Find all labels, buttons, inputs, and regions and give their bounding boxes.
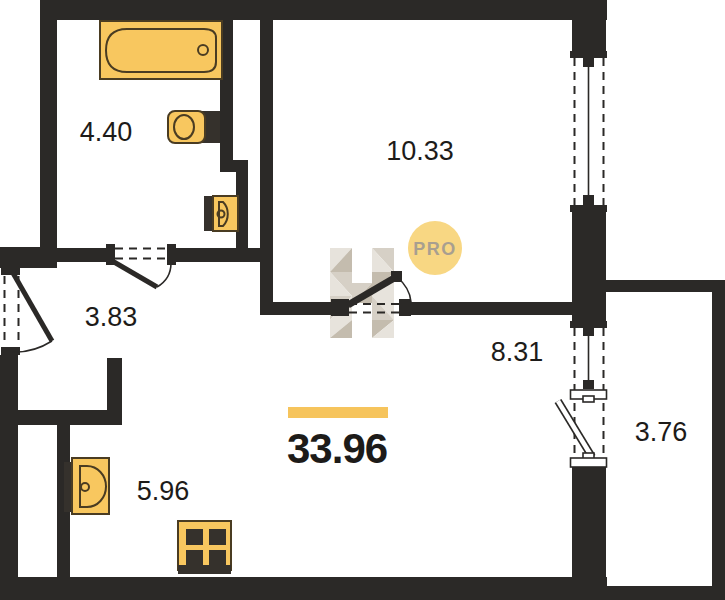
floor-plan: PRO xyxy=(0,0,725,600)
bathroom-door xyxy=(106,244,176,287)
washbasin-icon xyxy=(204,196,238,231)
door-sill xyxy=(571,458,607,467)
kitchen-sink-icon xyxy=(64,458,109,514)
bathtub-icon xyxy=(100,21,222,79)
door-swing-arc xyxy=(157,263,171,287)
stove-icon xyxy=(178,521,231,574)
balcony-door xyxy=(558,390,607,467)
area-label-bedroom: 10.33 xyxy=(386,136,454,166)
door-jamb xyxy=(331,299,349,316)
pro-badge-label: PRO xyxy=(413,239,457,259)
door-jamb xyxy=(1,267,20,275)
bedroom-window-icon xyxy=(575,57,604,205)
living-window-icon xyxy=(575,327,604,390)
area-label-hallway: 3.83 xyxy=(85,302,138,332)
floor-plan-canvas: PRO xyxy=(0,0,725,600)
door-jamb xyxy=(399,299,411,316)
door-leaf xyxy=(114,262,157,287)
area-label-living: 8.31 xyxy=(491,337,544,367)
total-area: 33.96 xyxy=(287,407,388,472)
toilet-icon xyxy=(168,111,220,143)
area-label-balcony: 3.76 xyxy=(635,417,688,447)
door-jamb xyxy=(1,347,20,355)
door-jamb xyxy=(106,244,115,265)
door-jamb xyxy=(167,244,176,265)
pro-badge: PRO xyxy=(408,221,462,275)
area-label-kitchen: 5.96 xyxy=(137,476,190,506)
total-area-label: 33.96 xyxy=(287,425,387,472)
area-label-bathroom: 4.40 xyxy=(80,117,133,147)
entrance-door xyxy=(1,267,52,355)
total-area-accent-bar xyxy=(288,407,388,418)
